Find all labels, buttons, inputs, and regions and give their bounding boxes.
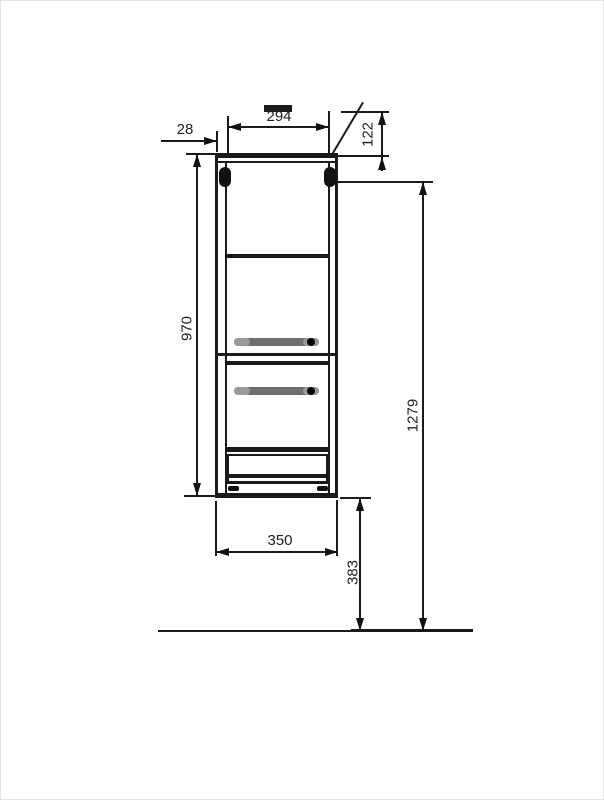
cabinet-top-edge [215, 153, 338, 158]
dim-383-label: 383 [346, 553, 361, 593]
dim-350-line [216, 551, 338, 553]
compartment-shelf-lower [229, 481, 326, 484]
hinge-left [219, 167, 231, 187]
handle-lower-screw [307, 387, 315, 395]
hinge-right [324, 167, 336, 187]
dim-122-arrow-top [378, 112, 386, 125]
dim-383-arrow-top [356, 498, 364, 511]
dim-294-label: 294 [253, 109, 305, 124]
dim-122-label: 122 [361, 115, 376, 155]
drawer-top-line [227, 361, 328, 365]
dim-294-arrow-left [228, 123, 241, 131]
cabinet-top-inner-line [218, 161, 335, 163]
handle-lower-left-cap [234, 387, 250, 395]
dim-970-arrow-top [193, 154, 201, 167]
cabinet-inner-right-line [328, 161, 330, 493]
compartment-shelf-upper [229, 474, 326, 478]
dim-28-label: 28 [171, 122, 199, 137]
dim-350-arrow-left [216, 548, 229, 556]
dim-294-ext-left [227, 116, 229, 153]
dim-28-ext [216, 131, 218, 152]
shelf-line [227, 254, 328, 258]
floor-line-thick-segment [351, 629, 473, 632]
compartment-inner-left [225, 456, 229, 484]
cabinet-right-side [335, 153, 338, 498]
dim-1279-label: 1279 [406, 389, 421, 443]
handle-upper-left-cap [234, 338, 250, 346]
compartment-top-thick [227, 447, 328, 452]
dim-122-arrow-bottom [378, 157, 386, 170]
foot-right [317, 486, 328, 491]
compartment-top-thin [227, 454, 328, 456]
handle-upper-screw [307, 338, 315, 346]
dim-970-line [196, 154, 198, 497]
cabinet-bottom-edge [215, 493, 338, 498]
cabinet-left-side [215, 153, 218, 498]
technical-drawing-canvas: 294 28 122 970 1279 350 383 [0, 0, 604, 800]
dim-350-label: 350 [252, 533, 308, 548]
dim-1279-line [422, 182, 424, 631]
foot-left [228, 486, 239, 491]
dim-294-ext-right [328, 111, 330, 153]
cabinet-inner-left-line [225, 161, 227, 493]
dim-350-arrow-right [325, 548, 338, 556]
dim-1279-arrow-top [419, 182, 427, 195]
dim-294-line [228, 126, 329, 128]
dim-970-label: 970 [180, 309, 195, 349]
compartment-inner-right [326, 456, 330, 484]
dim-294-arrow-right [316, 123, 329, 131]
door-bottom-line [218, 353, 335, 356]
dim-970-arrow-bottom [193, 483, 201, 496]
